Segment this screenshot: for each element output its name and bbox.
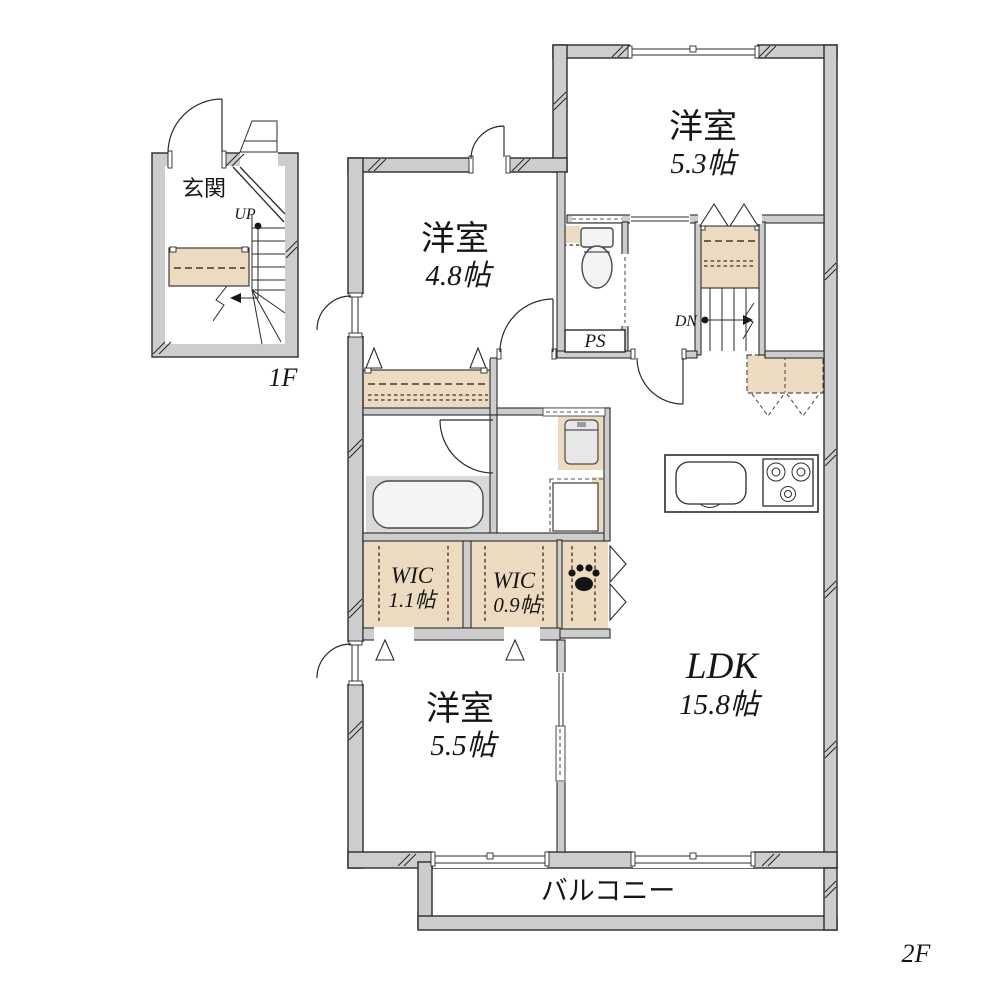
label-ldk-name: LDK — [685, 646, 760, 687]
floor2-label: 2F — [902, 939, 932, 968]
label-yoshitsu-53-size: 5.3帖 — [670, 148, 739, 180]
up-label: UP — [234, 206, 256, 223]
entrance-label: 玄関 — [182, 176, 226, 201]
floor-1f-plan: UP 玄関 1F — [152, 99, 299, 392]
label-wic11-size: 1.1帖 — [388, 588, 438, 612]
bathroom — [366, 476, 490, 534]
1f-shoe-closet — [169, 247, 249, 286]
washbasin-icon — [558, 413, 604, 470]
bathtub-icon — [373, 481, 483, 528]
label-wic09-name: WIC — [493, 568, 536, 593]
label-yoshitsu-48-size: 4.8帖 — [425, 260, 494, 292]
washing-machine-icon — [550, 477, 608, 537]
balcony-label: バルコニー — [541, 876, 675, 906]
floorplan-drawing: UP 玄関 1F — [0, 0, 1000, 1000]
label-wic09-size: 0.9帖 — [493, 593, 543, 617]
kitchen-counter — [665, 455, 818, 512]
label-yoshitsu-48-name: 洋室 — [421, 220, 489, 258]
ldk-storage — [747, 355, 823, 416]
floor1-label: 1F — [269, 363, 299, 392]
label-yoshitsu-53-name: 洋室 — [669, 108, 737, 146]
label-yoshitsu-55-size: 5.5帖 — [430, 730, 499, 762]
floorplan-canvas: UP 玄関 1F — [0, 0, 1000, 1000]
pet-nook — [560, 541, 608, 629]
ps-label: PS — [583, 331, 606, 352]
closet-5-3 — [699, 225, 761, 288]
entrance-door — [168, 99, 222, 153]
closet-4-8 — [363, 368, 492, 410]
label-ldk-size: 15.8帖 — [679, 689, 763, 721]
washroom-sliding-door — [543, 408, 605, 416]
toilet-icon — [581, 228, 613, 288]
label-wic11-name: WIC — [391, 563, 434, 588]
dn-label: DN — [674, 313, 699, 330]
label-yoshitsu-55-name: 洋室 — [426, 690, 494, 728]
floor-2f-plan: DN PS 洋室 5.3帖 洋室 4.8帖 洋室 5.5帖 — [317, 44, 932, 968]
1f-bay-window — [240, 121, 277, 152]
toilet — [563, 226, 613, 288]
stairs-down — [702, 288, 754, 351]
door-bathroom — [440, 420, 493, 473]
